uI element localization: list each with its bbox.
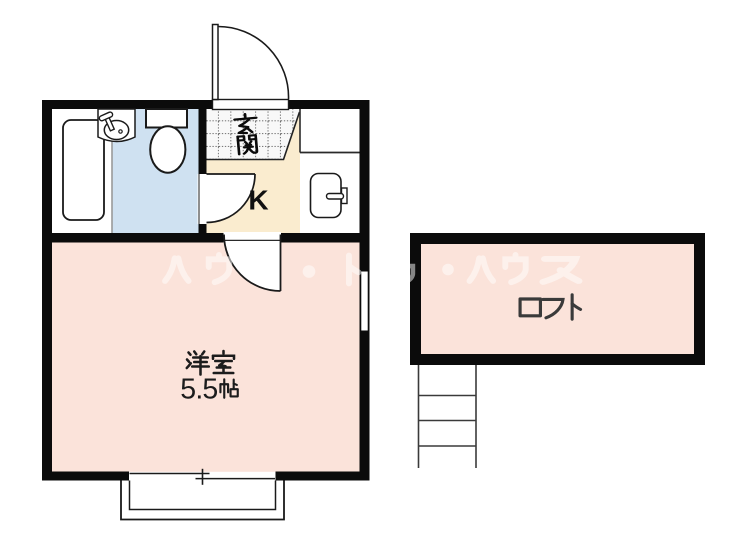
svg-text:5.5: 5.5 bbox=[180, 374, 217, 406]
svg-text:K: K bbox=[248, 185, 268, 216]
